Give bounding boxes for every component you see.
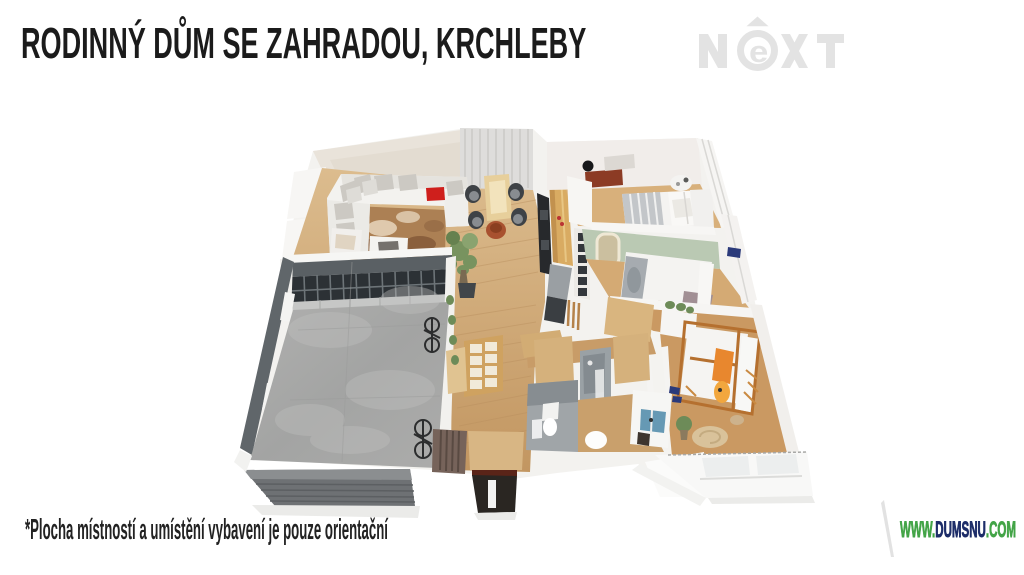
svg-text:e: e [749, 34, 768, 69]
svg-text:WWW.DUMSNU.COM: WWW.DUMSNU.COM [900, 517, 1016, 542]
